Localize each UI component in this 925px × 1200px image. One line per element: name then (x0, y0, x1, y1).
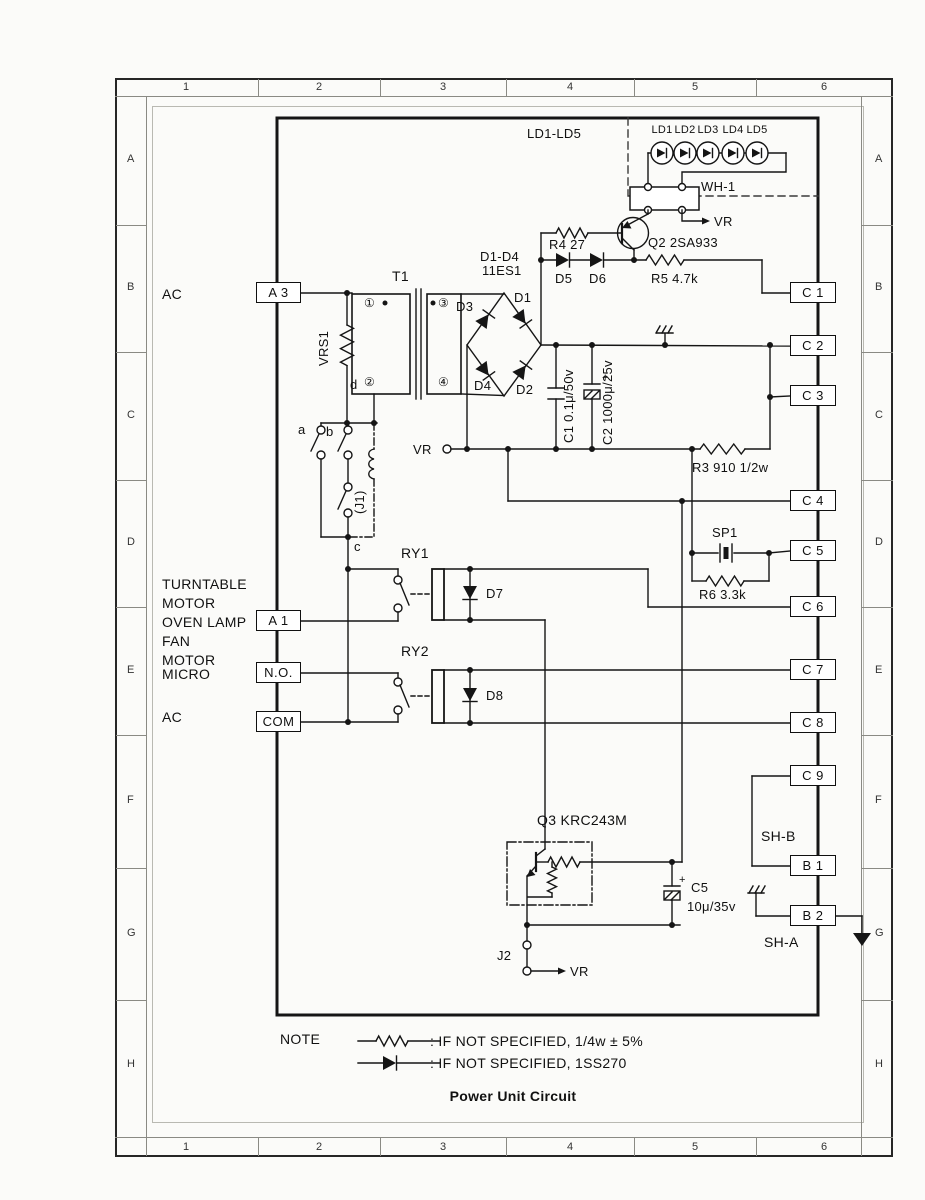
note-symbols (358, 1036, 440, 1070)
connector-c5: C 5 (790, 540, 836, 561)
note-resistor-rule: : IF NOT SPECIFIED, 1/4w ± 5% (430, 1033, 643, 1049)
r5-label: R5 4.7k (651, 271, 698, 286)
j1-label: (J1) (352, 490, 367, 514)
j2-label: J2 (497, 948, 511, 963)
connector-c3: C 3 (790, 385, 836, 406)
d8-label: D8 (486, 688, 503, 703)
c1-label: C1 0.1μ/50v (561, 369, 576, 443)
wh1-connector (630, 187, 699, 210)
d5-label: D5 (555, 271, 572, 286)
ld3-label: LD3 (697, 124, 718, 136)
t1-label: T1 (392, 268, 409, 284)
ld4-label: LD4 (722, 124, 743, 136)
connector-c7: C 7 (790, 659, 836, 680)
sh-a-label: SH-A (764, 934, 799, 950)
vr-label-top: VR (714, 214, 733, 229)
bridge-part-label: 11ES1 (482, 263, 522, 278)
connector-c6: C 6 (790, 596, 836, 617)
c5-name-label: C5 (691, 880, 708, 895)
t1-terminal-2: ② (364, 375, 375, 389)
connector-c8: C 8 (790, 712, 836, 733)
d1-label: D1 (514, 290, 531, 305)
ry2-label: RY2 (401, 643, 429, 659)
load-label: FAN (162, 633, 190, 649)
micro-label: MICRO (162, 666, 210, 682)
circuit-wiring (0, 0, 925, 1200)
ld5-label: LD5 (746, 124, 767, 136)
d3-label: D3 (456, 299, 473, 314)
r3-label: R3 910 1/2w (692, 460, 768, 475)
connector-b2: B 2 (790, 905, 836, 926)
r6-label: R6 3.3k (699, 587, 746, 602)
c5-value-label: 10μ/35v (687, 899, 736, 914)
q3-transistor (507, 620, 682, 925)
diagram-title: Power Unit Circuit (450, 1088, 577, 1104)
c2-polarity: + (602, 372, 609, 384)
j2-jumper (523, 925, 566, 975)
connector-a3: A 3 (256, 282, 301, 303)
connector-c2: C 2 (790, 335, 836, 356)
connector-c4: C 4 (790, 490, 836, 511)
ld1-label: LD1 (651, 124, 672, 136)
sp1-label: SP1 (712, 525, 737, 540)
connector-com: COM (256, 711, 301, 732)
note-heading: NOTE (280, 1031, 320, 1047)
connector-no: N.O. (256, 662, 301, 683)
r4-label: R4 27 (549, 237, 585, 252)
vr-label-mid: VR (413, 442, 432, 457)
main-circuit-border (277, 118, 818, 1015)
t1-terminal-4: ④ (438, 375, 449, 389)
d6-label: D6 (589, 271, 606, 286)
t1-terminal-1: ① (364, 296, 375, 310)
load-label: TURNTABLE (162, 576, 247, 592)
note-diode-rule: : IF NOT SPECIFIED, 1SS270 (430, 1055, 627, 1071)
ac-input-label: AC (162, 286, 182, 302)
ld2-label: LD2 (674, 124, 695, 136)
t1-terminal-3: ③ (438, 296, 449, 310)
load-label: OVEN LAMP (162, 614, 246, 630)
sh-b-label: SH-B (761, 828, 796, 844)
switch-b-label: b (326, 424, 334, 439)
load-label: MOTOR (162, 595, 215, 611)
vr-label-bottom: VR (570, 964, 589, 979)
vr-rail-and-r3 (443, 345, 790, 862)
node-d-label: d (350, 377, 358, 392)
led-group-label: LD1-LD5 (527, 126, 581, 141)
wh1-label: WH-1 (701, 179, 735, 194)
vrs1-label: VRS1 (316, 331, 331, 366)
power-unit-circuit-page: 1 2 3 4 5 6 1 2 3 4 5 6 A B C D E F G H … (0, 0, 925, 1200)
q3-label: Q3 KRC243M (537, 812, 627, 828)
c5-polarity: + (679, 874, 686, 886)
connector-b1: B 1 (790, 855, 836, 876)
ac-com-label: AC (162, 709, 182, 725)
bridge-rectifier (467, 293, 790, 449)
node-c-label: c (354, 539, 361, 554)
d7-label: D7 (486, 586, 503, 601)
connector-a1: A 1 (256, 610, 301, 631)
q2-label: Q2 2SA933 (648, 235, 718, 250)
connector-c1: C 1 (790, 282, 836, 303)
ry1-label: RY1 (401, 545, 429, 561)
switch-a-label: a (298, 422, 306, 437)
connector-c9: C 9 (790, 765, 836, 786)
d2-label: D2 (516, 382, 533, 397)
d4-label: D4 (474, 378, 491, 393)
bridge-name-label: D1-D4 (480, 249, 519, 264)
